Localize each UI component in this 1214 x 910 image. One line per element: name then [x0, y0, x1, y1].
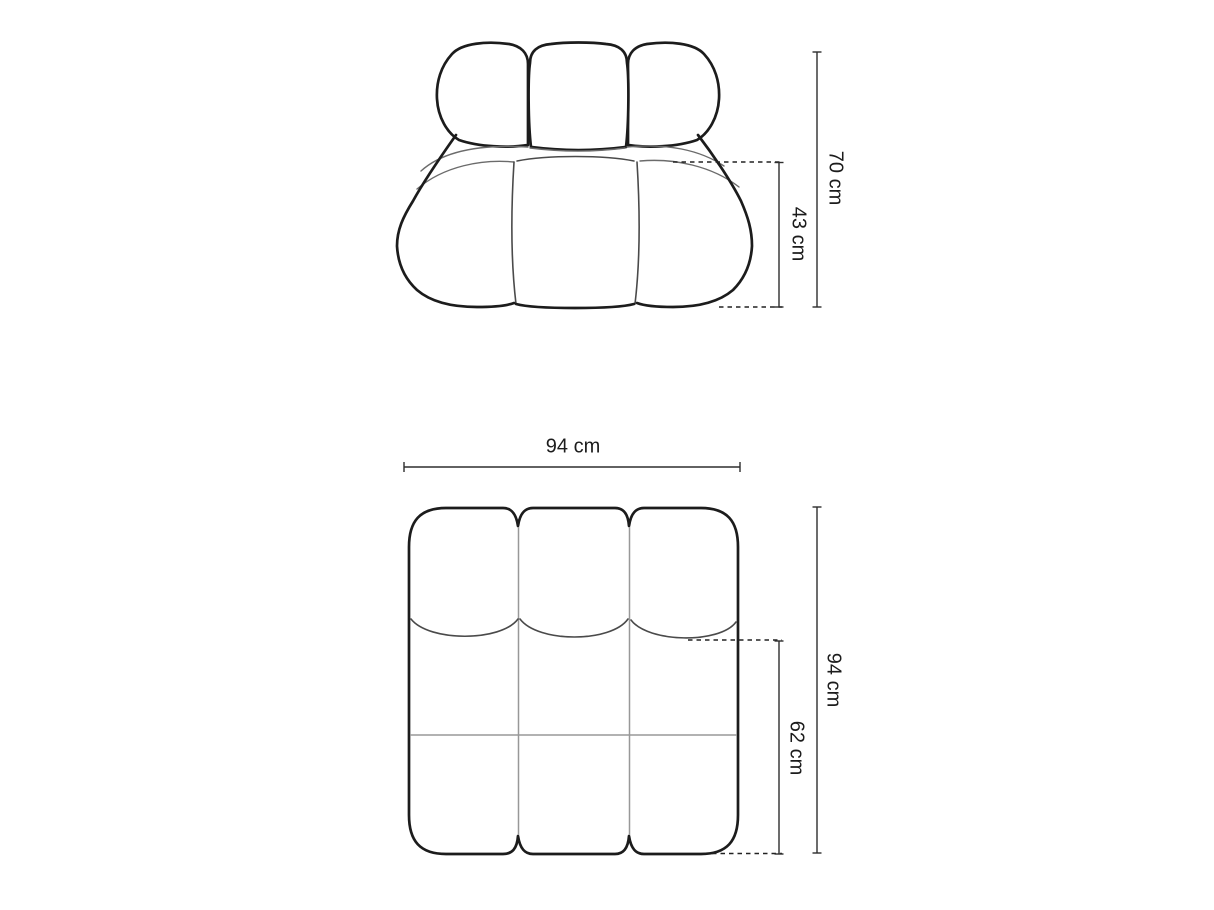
backrest-edge-arc-left	[411, 619, 518, 636]
backrest-bubble-left	[437, 43, 528, 147]
backrest-bubble-right	[628, 43, 719, 147]
backrest-bubble-middle	[529, 43, 629, 151]
height-dimension-label: 70 cm	[824, 151, 847, 205]
sofa-dimension-linework	[0, 0, 1214, 910]
sofa-top-view-drawing	[409, 508, 738, 854]
height-dimension-line	[813, 52, 822, 307]
deck-seam-left	[421, 146, 528, 171]
backrest-edge-arc-middle	[520, 619, 628, 637]
seat-inner-seam-left	[512, 162, 516, 304]
depth-dimension-label: 94 cm	[822, 653, 845, 707]
seat-inner-seam-right	[635, 162, 639, 304]
seat-bottom-middle	[516, 304, 634, 308]
top-view-outline	[409, 508, 738, 854]
backrest-edge-arc-right	[631, 620, 736, 638]
top-view-dimensions	[404, 462, 822, 854]
seat-top-seam-left	[417, 161, 514, 189]
depth-dimension-line	[813, 507, 822, 853]
seat-height-dimension-label: 43 cm	[787, 207, 810, 261]
sofa-front-view-drawing	[397, 43, 752, 309]
seat-depth-dimension-line	[775, 641, 784, 854]
seat-depth-dimension-label: 62 cm	[785, 721, 808, 775]
seat-height-dimension-line	[775, 163, 784, 308]
width-dimension-line	[404, 462, 740, 472]
seat-top-seam-middle	[517, 157, 634, 162]
dimension-diagram: 70 cm 43 cm 94 cm 94 cm 62 cm	[0, 0, 1214, 910]
width-dimension-label: 94 cm	[546, 436, 600, 459]
